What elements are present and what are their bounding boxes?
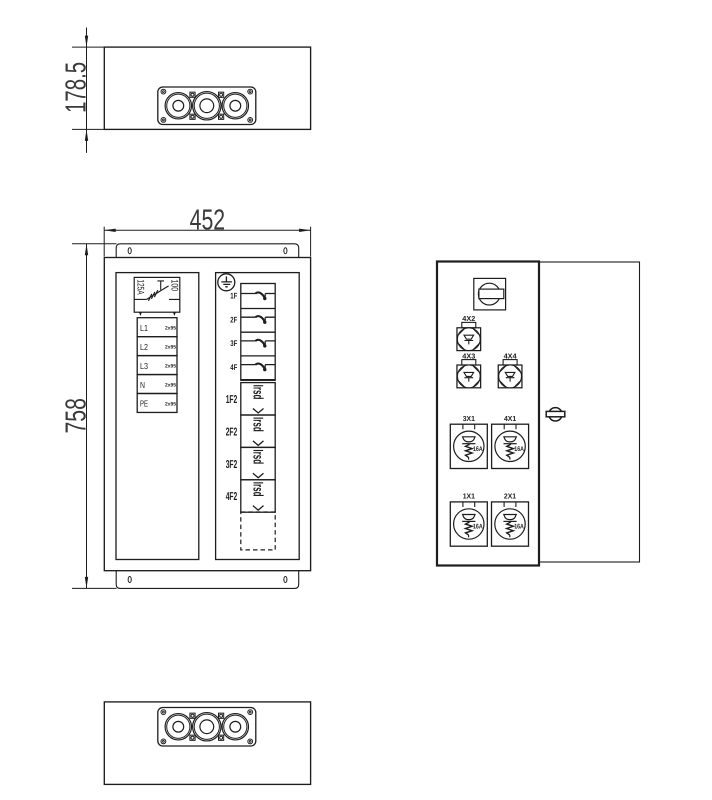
svg-text:1F2: 1F2 (226, 394, 238, 406)
svg-text:2x95: 2x95 (165, 401, 176, 407)
svg-text:Irsd: Irsd (251, 449, 267, 464)
svg-text:Irsd: Irsd (251, 417, 267, 432)
svg-text:1X1: 1X1 (463, 492, 475, 501)
svg-text:758: 758 (61, 398, 93, 434)
svg-text:3F2: 3F2 (226, 459, 238, 471)
svg-text:16A: 16A (473, 446, 483, 453)
svg-text:L3: L3 (140, 361, 148, 371)
svg-text:16A: 16A (473, 524, 483, 531)
svg-text:L2: L2 (140, 342, 148, 352)
svg-text:4F2: 4F2 (226, 491, 238, 503)
svg-text:2F2: 2F2 (226, 426, 238, 438)
svg-text:4X4: 4X4 (504, 351, 517, 360)
svg-text:1F: 1F (230, 292, 237, 301)
svg-text:4F: 4F (230, 363, 237, 372)
svg-text:2x95: 2x95 (165, 382, 176, 388)
svg-text:2x95: 2x95 (165, 326, 176, 332)
svg-text:4X1: 4X1 (504, 414, 516, 423)
svg-text:2X1: 2X1 (504, 492, 516, 501)
svg-text:3X1: 3X1 (463, 414, 475, 423)
svg-text:16A: 16A (514, 524, 524, 531)
svg-text:Irsd: Irsd (251, 385, 267, 400)
svg-text:2x95: 2x95 (165, 363, 176, 369)
svg-text:4X3: 4X3 (462, 351, 475, 360)
svg-text:N: N (140, 380, 145, 390)
svg-text:2F: 2F (230, 315, 237, 324)
svg-text:178.5: 178.5 (61, 62, 93, 113)
svg-text:16A: 16A (514, 446, 524, 453)
svg-text:PE: PE (140, 399, 148, 409)
svg-text:3F: 3F (230, 339, 237, 348)
svg-text:452: 452 (190, 204, 226, 236)
svg-text:100: 100 (168, 280, 179, 292)
svg-text:L1: L1 (140, 323, 148, 333)
svg-text:125A: 125A (135, 279, 146, 295)
svg-text:Irsd: Irsd (251, 482, 267, 497)
svg-text:2x95: 2x95 (165, 344, 176, 350)
